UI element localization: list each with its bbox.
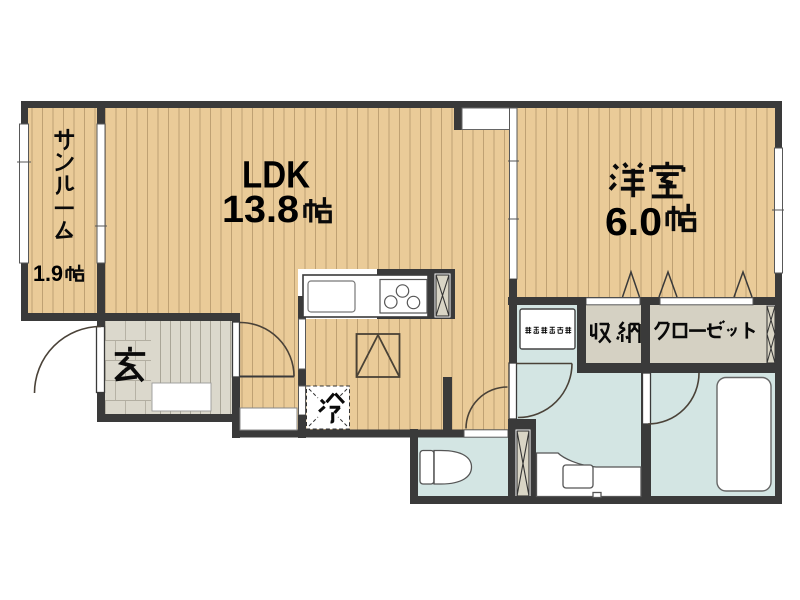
svg-text:6.0: 6.0 bbox=[605, 201, 662, 244]
svg-text:1.9: 1.9 bbox=[33, 261, 63, 286]
svg-text:13.8: 13.8 bbox=[222, 189, 299, 231]
